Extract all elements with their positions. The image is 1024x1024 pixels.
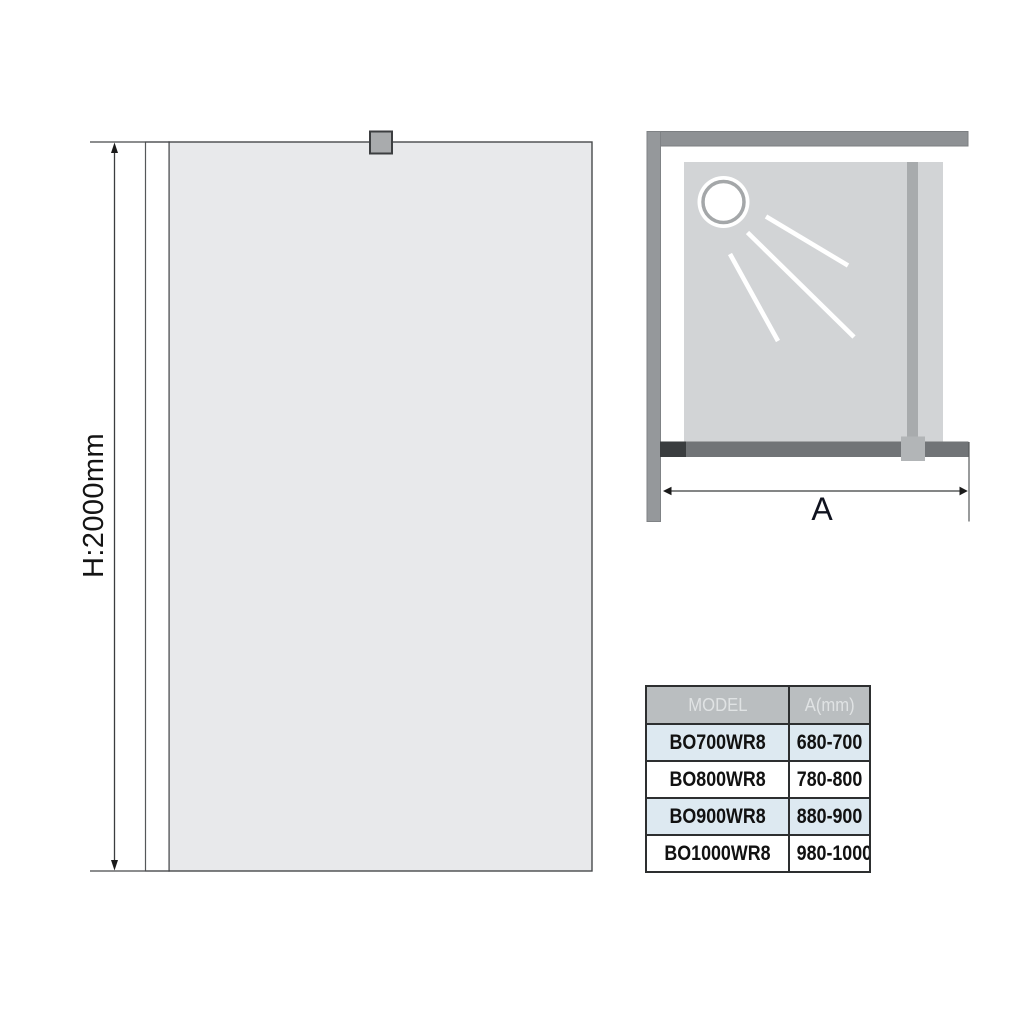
svg-text:H:2000mm: H:2000mm — [78, 433, 110, 578]
svg-text:A: A — [811, 491, 833, 527]
